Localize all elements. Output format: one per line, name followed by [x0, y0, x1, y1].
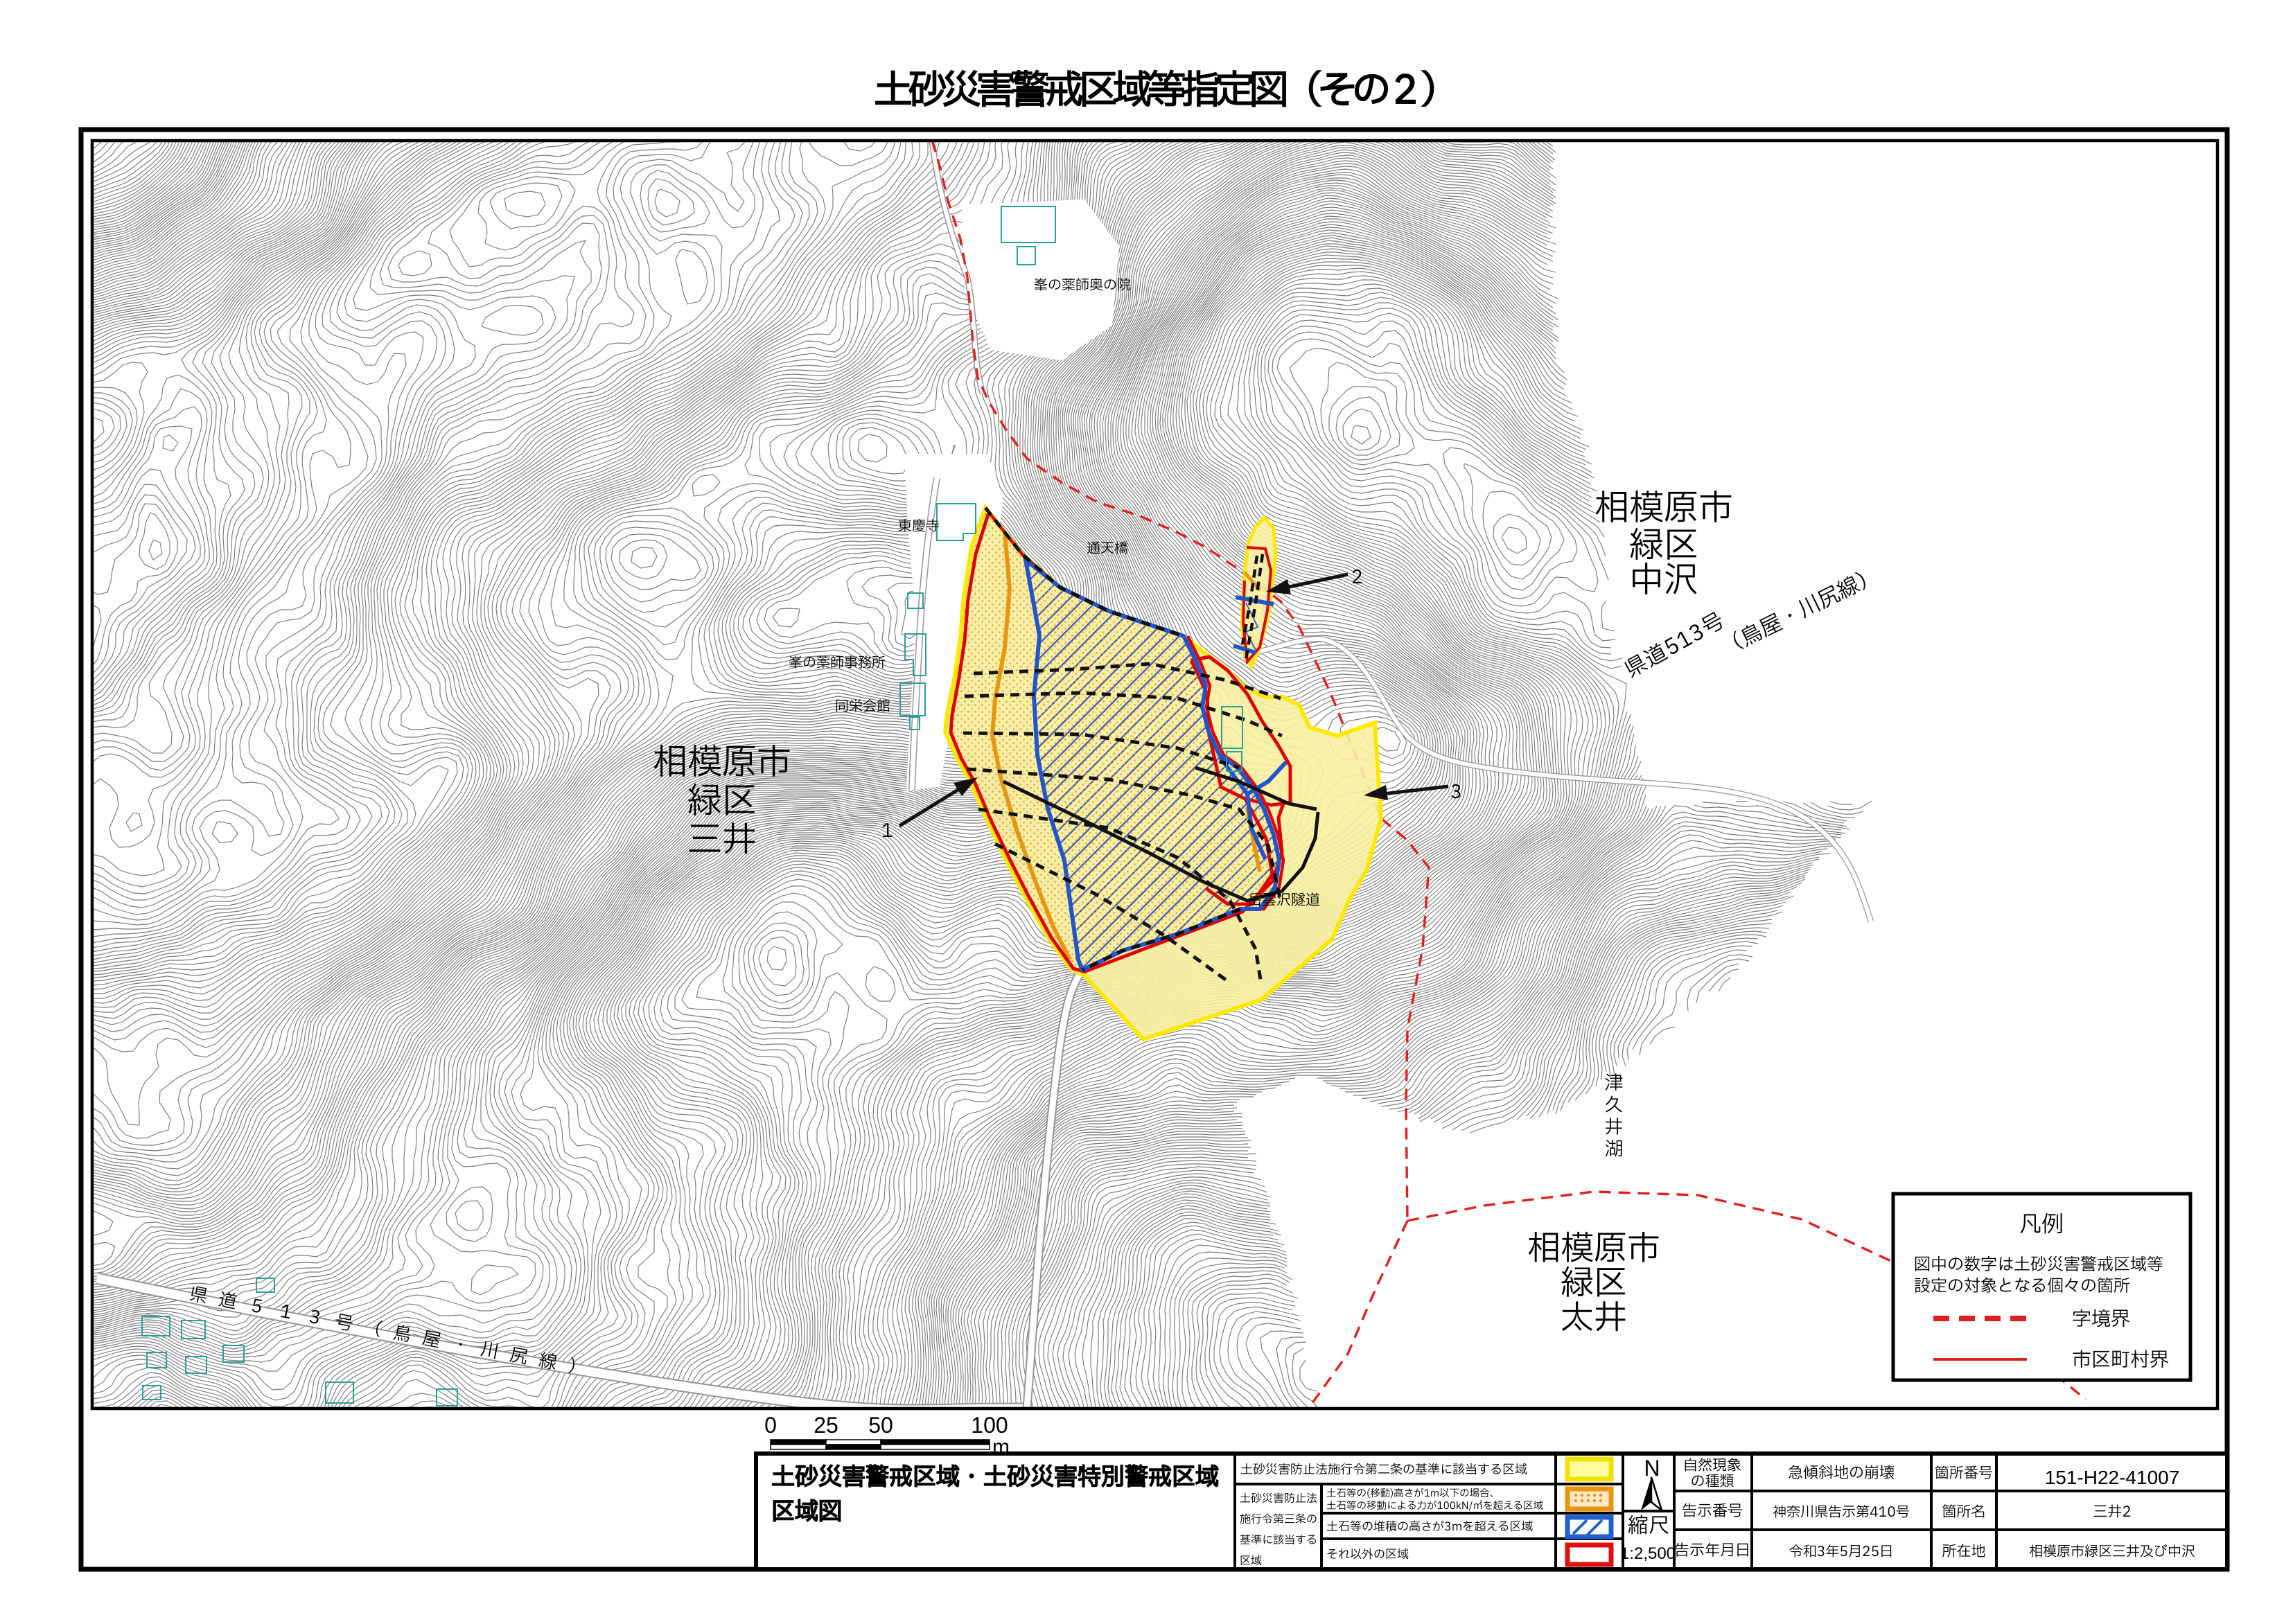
svg-text:0: 0: [764, 1413, 777, 1438]
svg-text:1:2,500: 1:2,500: [1620, 1544, 1676, 1563]
svg-text:151-H22-41007: 151-H22-41007: [2045, 1467, 2180, 1488]
svg-text:25: 25: [814, 1413, 838, 1438]
svg-text:50: 50: [868, 1413, 893, 1438]
svg-text:100: 100: [971, 1413, 1008, 1438]
svg-text:N: N: [1644, 1456, 1660, 1481]
